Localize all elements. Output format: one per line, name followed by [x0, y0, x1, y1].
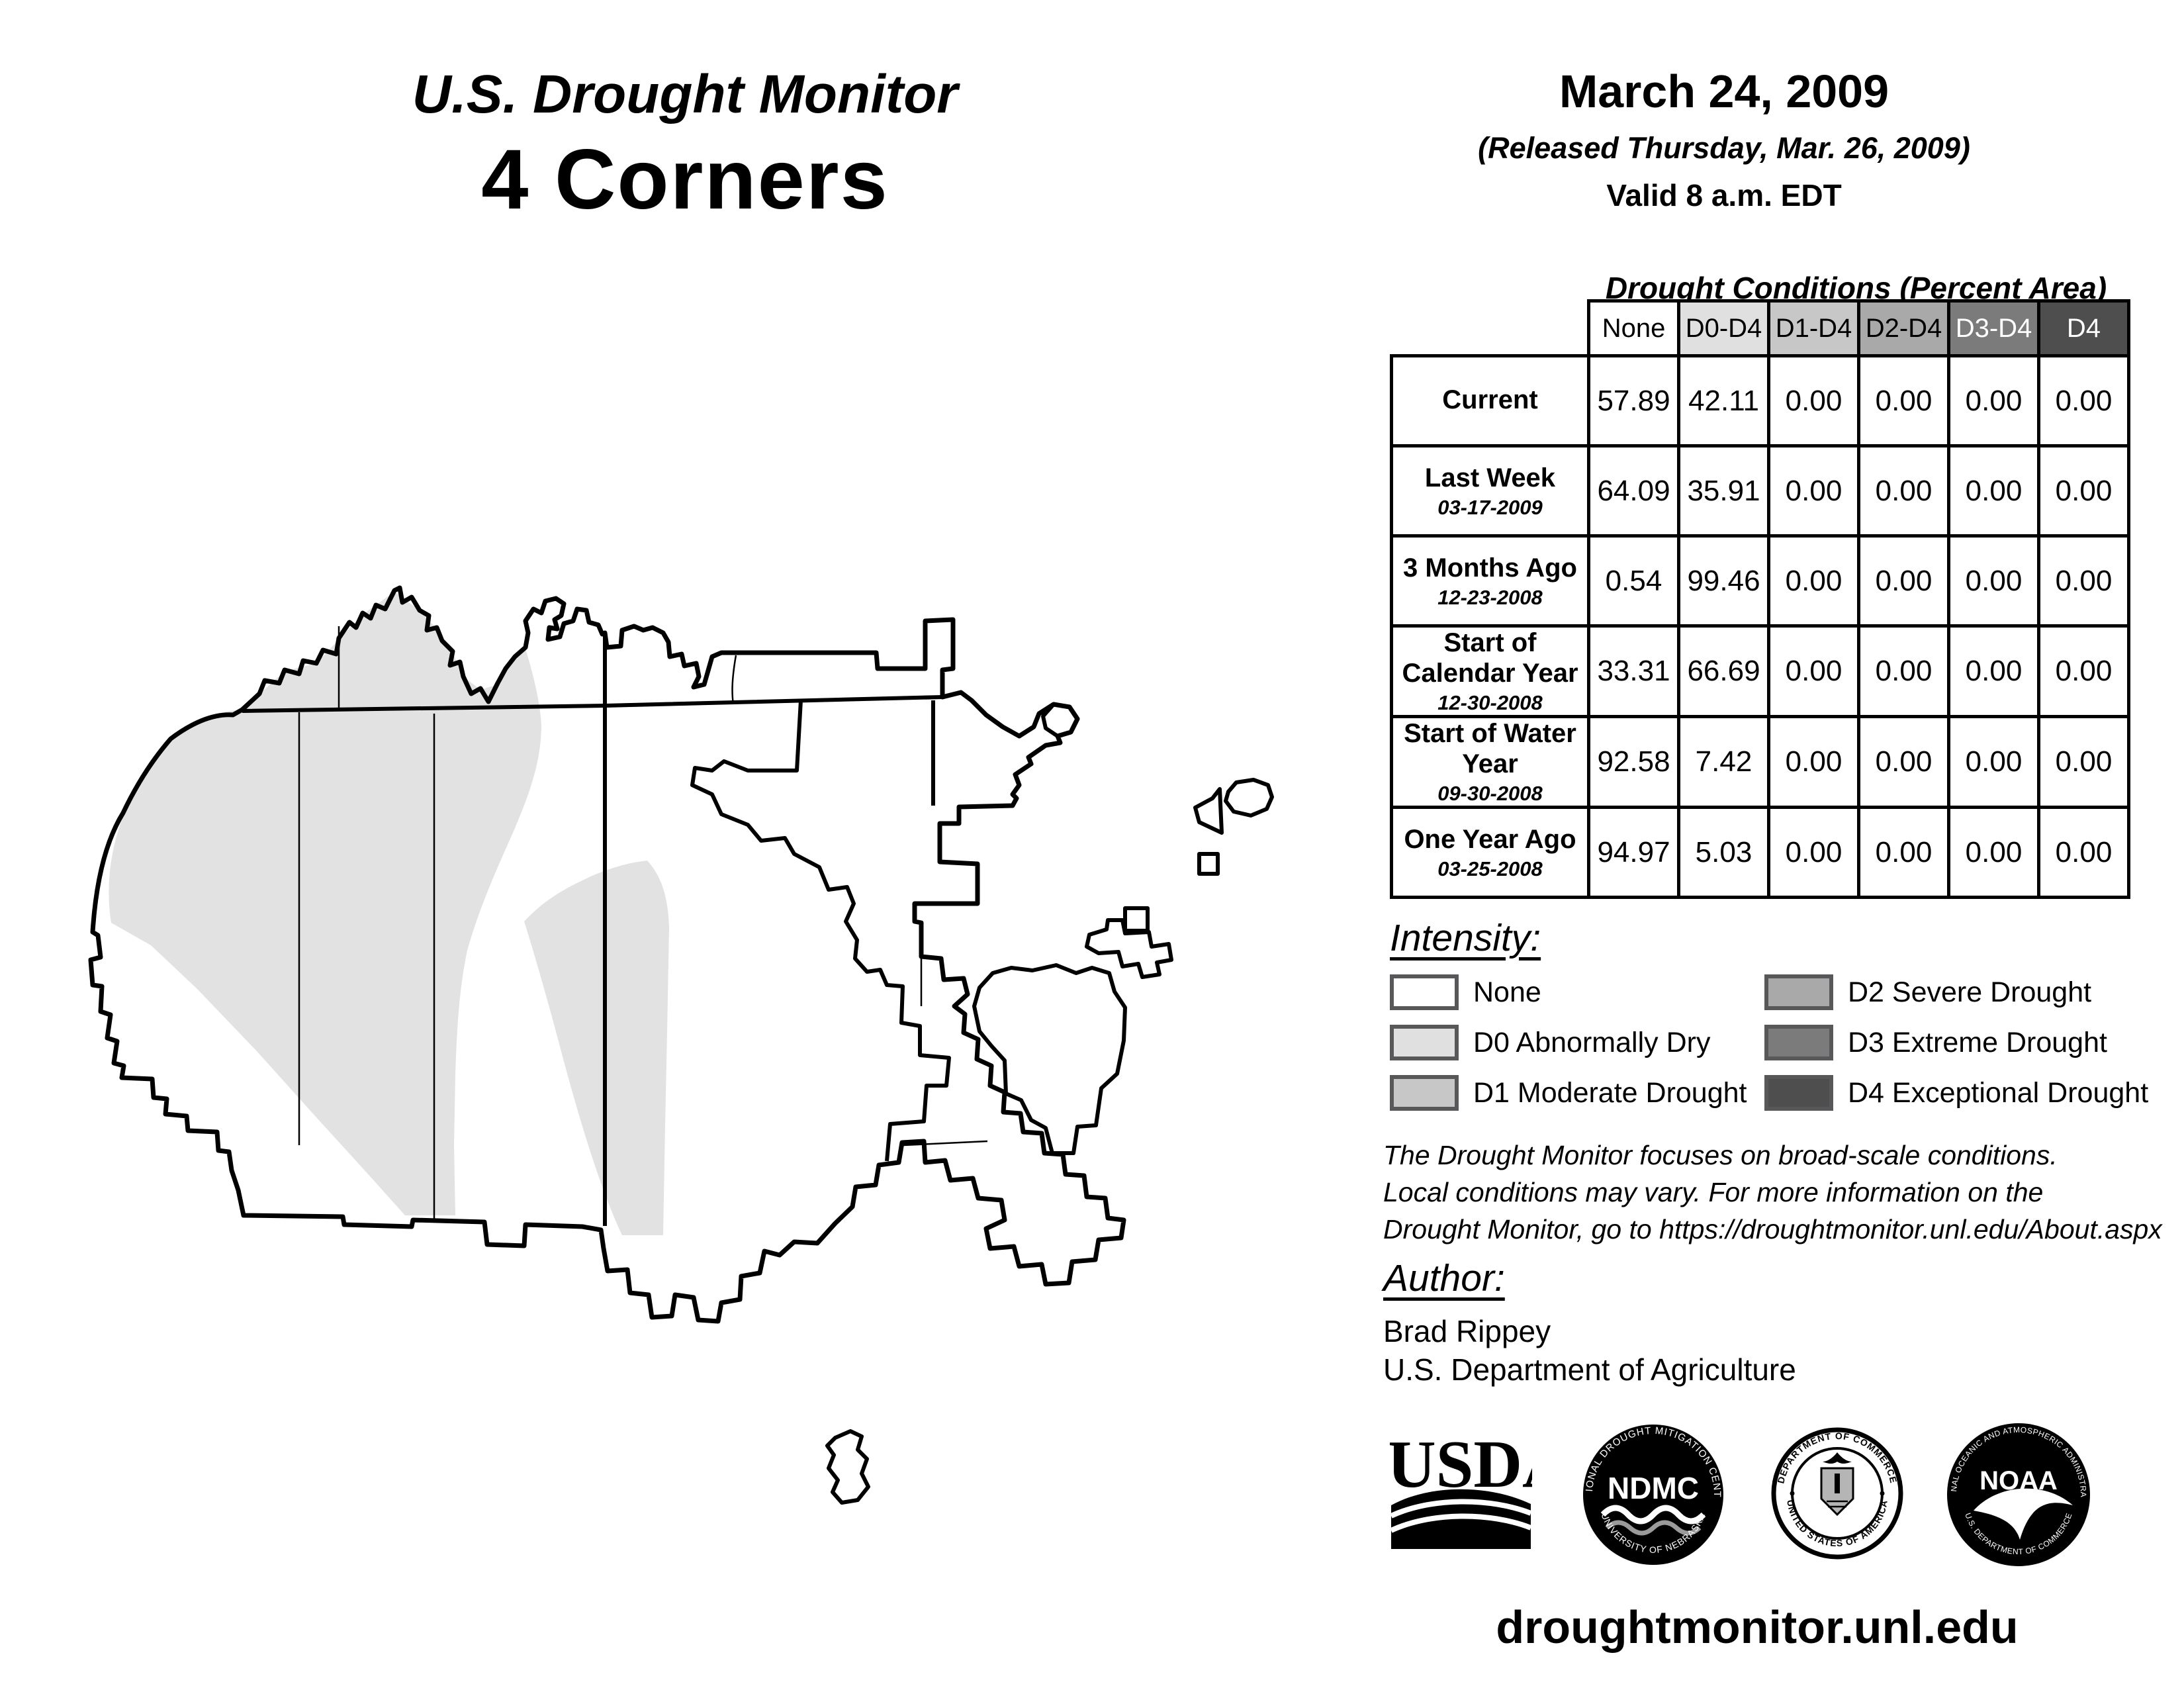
legend-item-d0: D0 Abnormally Dry	[1390, 1025, 1710, 1060]
table-cell: 0.00	[1859, 536, 1949, 626]
table-cell: 0.00	[1859, 808, 1949, 898]
table-cell: 0.00	[1769, 808, 1859, 898]
column-header-d4: D4	[2039, 301, 2129, 356]
table-cell: 0.54	[1589, 536, 1679, 626]
table-cell: 0.00	[2039, 717, 2129, 808]
table-header-row: None D0-D4 D1-D4 D2-D4 D3-D4 D4	[1392, 301, 2129, 356]
table-row: Start of Calendar Year12-30-2008 33.31 6…	[1392, 626, 2129, 717]
column-header-none: None	[1589, 301, 1679, 356]
usda-logo: USDA	[1390, 1431, 1532, 1561]
table-cell: 0.00	[1949, 717, 2039, 808]
table-cell: 0.00	[1859, 717, 1949, 808]
disclaimer-line: Local conditions may vary. For more info…	[1383, 1177, 2164, 1208]
table-row: 3 Months Ago12-23-2008 0.54 99.46 0.00 0…	[1392, 536, 2129, 626]
legend-item-none: None	[1390, 974, 1541, 1010]
released-date: (Released Thursday, Mar. 26, 2009)	[1390, 131, 2058, 165]
table-cell: 33.31	[1589, 626, 1679, 717]
table-cell: 0.00	[1769, 717, 1859, 808]
table-cell: 0.00	[1949, 446, 2039, 536]
legend-swatch-d3	[1764, 1025, 1833, 1060]
site-url: droughtmonitor.unl.edu	[1390, 1601, 2124, 1654]
region-title: 4 Corners	[156, 131, 1214, 228]
legend-swatch-d0	[1390, 1025, 1459, 1060]
legend-title: Intensity:	[1390, 916, 1541, 960]
table-cell: 57.89	[1589, 356, 1679, 446]
table-cell: 7.42	[1679, 717, 1769, 808]
table-cell: 0.00	[1949, 626, 2039, 717]
disclaimer-line: Drought Monitor, go to https://droughtmo…	[1383, 1214, 2164, 1245]
table-cell: 0.00	[1769, 446, 1859, 536]
legend-item-d3: D3 Extreme Drought	[1764, 1025, 2107, 1060]
table-cell: 0.00	[2039, 356, 2129, 446]
author-org: U.S. Department of Agriculture	[1383, 1352, 1796, 1387]
map-interior-boundaries	[692, 700, 1125, 1161]
table-cell: 0.00	[2039, 626, 2129, 717]
table-cell: 92.58	[1589, 717, 1679, 808]
table-row: Current 57.89 42.11 0.00 0.00 0.00 0.00	[1392, 356, 2129, 446]
table-row: Last Week03-17-2009 64.09 35.91 0.00 0.0…	[1392, 446, 2129, 536]
table-cell: 0.00	[1769, 626, 1859, 717]
author-title: Author:	[1383, 1256, 1505, 1300]
row-label: One Year Ago03-25-2008	[1392, 808, 1589, 898]
page-title: U.S. Drought Monitor	[156, 64, 1214, 126]
table-cell: 0.00	[2039, 536, 2129, 626]
legend-swatch-d2	[1764, 974, 1833, 1010]
table-cell: 64.09	[1589, 446, 1679, 536]
disclaimer-line: The Drought Monitor focuses on broad-sca…	[1383, 1140, 2164, 1171]
row-label: Last Week03-17-2009	[1392, 446, 1589, 536]
table-cell: 0.00	[1769, 536, 1859, 626]
map-d0-region-west	[109, 592, 541, 1215]
table-cell: 66.69	[1679, 626, 1769, 717]
legend-swatch-d4	[1764, 1075, 1833, 1111]
column-header-d0d4: D0-D4	[1679, 301, 1769, 356]
table-cell: 35.91	[1679, 446, 1769, 536]
column-header-d1d4: D1-D4	[1769, 301, 1859, 356]
column-header-d2d4: D2-D4	[1859, 301, 1949, 356]
noaa-logo: NATIONAL OCEANIC AND ATMOSPHERIC ADMINIS…	[1943, 1419, 2094, 1570]
table-cell: 42.11	[1679, 356, 1769, 446]
legend-item-d4: D4 Exceptional Drought	[1764, 1075, 2148, 1111]
legend-item-d1: D1 Moderate Drought	[1390, 1075, 1747, 1111]
drought-conditions-table: None D0-D4 D1-D4 D2-D4 D3-D4 D4 Current …	[1390, 299, 2130, 899]
table-cell: 0.00	[2039, 446, 2129, 536]
table-cell: 0.00	[1949, 536, 2039, 626]
table-cell: 0.00	[1769, 356, 1859, 446]
table-cell: 99.46	[1679, 536, 1769, 626]
table-cell: 0.00	[1859, 626, 1949, 717]
table-cell: 0.00	[2039, 808, 2129, 898]
table-cell: 94.97	[1589, 808, 1679, 898]
table-cell: 0.00	[1859, 356, 1949, 446]
row-label: Start of Water Year09-30-2008	[1392, 717, 1589, 808]
legend-swatch-none	[1390, 974, 1459, 1010]
row-label: 3 Months Ago12-23-2008	[1392, 536, 1589, 626]
map-date: March 24, 2009	[1390, 65, 2058, 118]
row-label: Current	[1392, 356, 1589, 446]
legend-item-d2: D2 Severe Drought	[1764, 974, 2091, 1010]
table-cell: 5.03	[1679, 808, 1769, 898]
author-name: Brad Rippey	[1383, 1313, 1551, 1349]
ndmc-logo-center-text: NDMC	[1608, 1471, 1699, 1505]
table-corner-blank	[1392, 301, 1589, 356]
row-label: Start of Calendar Year12-30-2008	[1392, 626, 1589, 717]
legend-swatch-d1	[1390, 1075, 1459, 1111]
table-row: One Year Ago03-25-2008 94.97 5.03 0.00 0…	[1392, 808, 2129, 898]
table-row: Start of Water Year09-30-2008 92.58 7.42…	[1392, 717, 2129, 808]
valid-time: Valid 8 a.m. EDT	[1390, 177, 2058, 213]
ndmc-logo: NATIONAL DROUGHT MITIGATION CENTER NDMC …	[1579, 1421, 1727, 1569]
table-cell: 0.00	[1859, 446, 1949, 536]
map-d0-region-band	[524, 861, 669, 1235]
table-cell: 0.00	[1949, 808, 2039, 898]
column-header-d3d4: D3-D4	[1949, 301, 2039, 356]
commerce-logo: DEPARTMENT OF COMMERCE UNITED STATES OF …	[1771, 1427, 1903, 1560]
table-cell: 0.00	[1949, 356, 2039, 446]
